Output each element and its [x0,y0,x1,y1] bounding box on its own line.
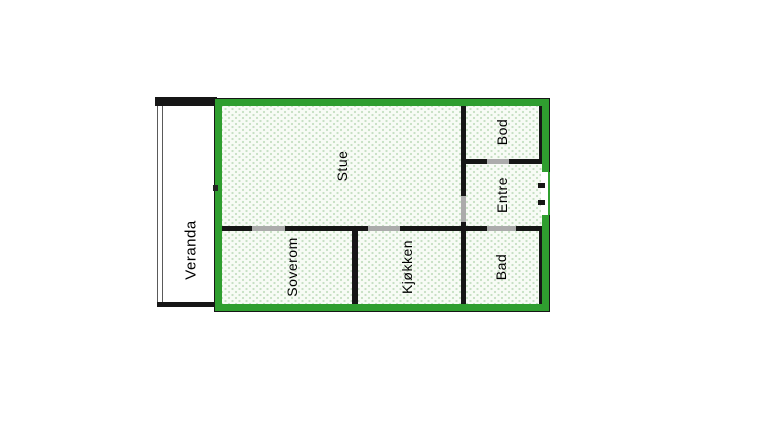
entry-outer-edge [548,172,550,215]
room-label-bad: Bad [493,254,509,280]
room-label-veranda: Veranda [183,220,200,279]
door-opening-stue-entre [461,196,466,222]
room-label-stue: Stue [334,151,350,182]
veranda-top-wall [155,97,217,106]
entry-door-jamb-bottom [538,200,545,205]
main-unit-outline: Stue Soverom Kjøkken Bod Entre Bad [215,99,549,311]
room-label-kjokken: Kjøkken [399,240,415,294]
entry-door-jamb-top [538,183,545,188]
room-label-bod: Bod [494,119,510,145]
floorplan: Veranda Stue Soverom Kjøkken [155,97,549,313]
wall-soverom-kjokken [352,231,358,304]
wall-bod-right-edge [539,106,542,159]
room-label-soverom: Soverom [284,237,300,297]
door-opening-kjokken [368,226,400,231]
veranda-railing [157,106,163,302]
room-label-entre: Entre [494,177,510,213]
door-opening-bad [487,226,516,231]
door-opening-soverom [252,226,285,231]
floorplan-image: Veranda Stue Soverom Kjøkken [0,0,770,433]
veranda-bottom-wall [157,302,216,307]
door-opening-bod [487,159,509,164]
wall-bad-right-edge [539,231,542,304]
door-tick-stue-veranda [213,185,218,191]
